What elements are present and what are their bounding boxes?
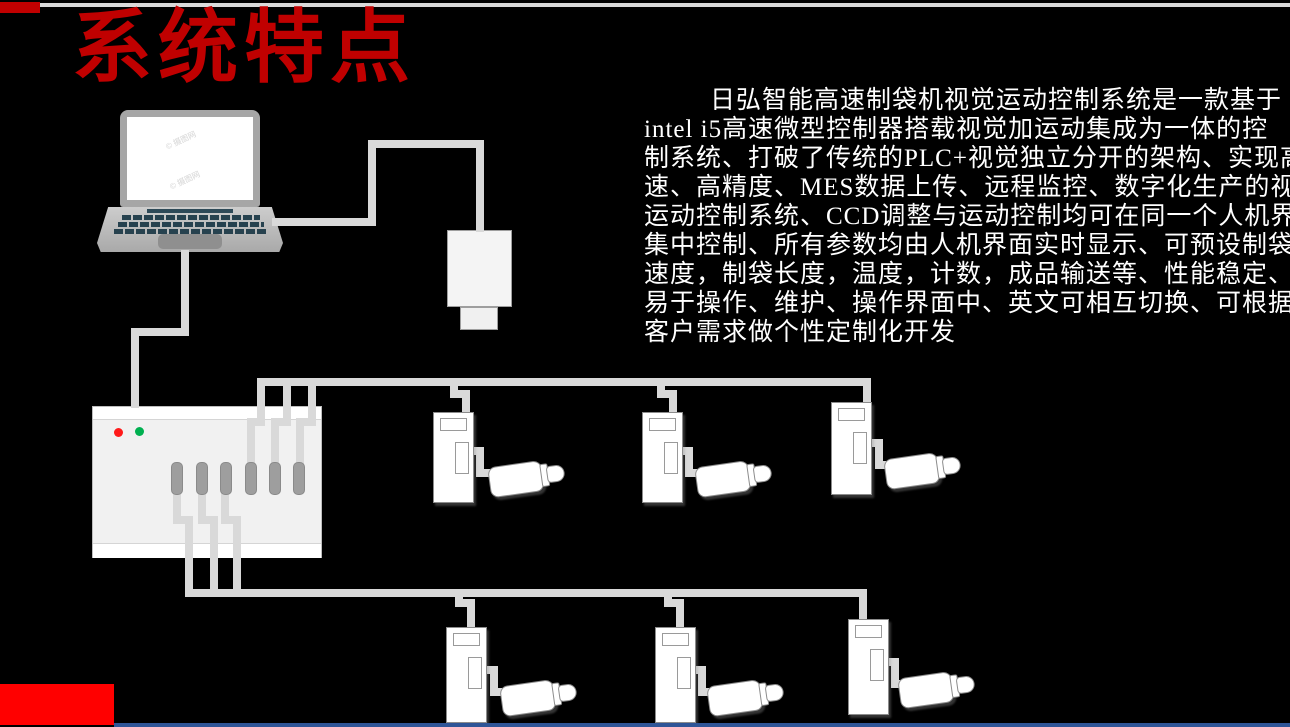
servo-motor	[897, 665, 980, 713]
industrial-camera	[447, 230, 512, 307]
drive-display	[662, 633, 689, 646]
laptop-key-row	[122, 215, 260, 220]
drive-display	[440, 418, 467, 431]
body-line: 制系统、打破了传统的PLC+视觉独立分开的架构、实现高	[644, 144, 1290, 173]
motor-body	[897, 671, 955, 709]
motor-body	[694, 460, 752, 498]
drive-display	[453, 633, 480, 646]
servo-motor	[694, 454, 777, 502]
footer-blue-bar	[114, 723, 1290, 727]
motor-shaft	[765, 683, 785, 702]
body-line: 集中控制、所有参数均由人机界面实时显示、可预设制袋	[644, 231, 1290, 260]
body-line: 日弘智能高速制袋机视觉运动控制系统是一款基于	[644, 86, 1290, 115]
body-line: 客户需求做个性定制化开发	[644, 318, 1290, 347]
cable-segment	[467, 599, 475, 627]
status-led-green	[135, 427, 144, 436]
body-line: 易于操作、维护、操作界面中、英文可相互切换、可根据	[644, 289, 1290, 318]
motor-body	[499, 679, 557, 717]
drive-slot	[468, 657, 482, 689]
drive-display	[855, 625, 882, 638]
cable-segment	[296, 418, 316, 426]
drive-slot	[455, 442, 469, 474]
motor-shaft	[753, 464, 773, 483]
motor-shaft	[956, 675, 976, 694]
cable-segment	[368, 140, 484, 148]
io-terminal	[245, 462, 257, 495]
servo-drive	[655, 627, 696, 723]
motor-shaft	[546, 464, 566, 483]
io-terminal	[171, 462, 183, 495]
footer-red-block	[0, 684, 114, 725]
cable-segment	[271, 418, 291, 426]
servo-drive	[446, 627, 487, 723]
drive-slot	[677, 657, 691, 689]
cable-segment	[210, 516, 218, 597]
cable-segment	[247, 418, 265, 426]
laptop-key-bar	[147, 209, 233, 213]
servo-drive	[831, 402, 872, 495]
io-terminal	[196, 462, 208, 495]
cable-segment	[257, 378, 871, 386]
cable-segment	[233, 516, 241, 597]
io-terminal	[293, 462, 305, 495]
laptop-keyboard	[97, 207, 283, 252]
power-led-red	[114, 428, 123, 437]
body-line: 速度，制袋长度，温度，计数，成品输送等、性能稳定、	[644, 260, 1290, 289]
cable-segment	[181, 250, 189, 336]
io-terminal	[220, 462, 232, 495]
slide-canvas: 系统特点 日弘智能高速制袋机视觉运动控制系统是一款基于 intel i5高速微型…	[0, 0, 1290, 727]
servo-motor	[487, 454, 570, 502]
cable-segment	[131, 328, 139, 408]
cable-segment	[296, 426, 304, 466]
drive-display	[649, 418, 676, 431]
laptop-screen-panel: © 摄图网 © 摄图网	[127, 117, 253, 200]
watermark: © 摄图网	[164, 129, 198, 153]
laptop-screen: © 摄图网 © 摄图网	[120, 110, 260, 207]
body-line: 速、高精度、MES数据上传、远程监控、数字化生产的视觉	[644, 173, 1290, 202]
drive-slot	[870, 649, 884, 681]
servo-drive	[848, 619, 889, 715]
cable-segment	[271, 426, 279, 466]
cable-segment	[131, 328, 189, 336]
drive-display	[838, 408, 865, 421]
servo-motor	[883, 446, 966, 494]
drive-slot	[853, 432, 867, 464]
cable-segment	[247, 426, 255, 466]
page-title: 系统特点	[72, 0, 416, 96]
cable-segment	[676, 599, 684, 627]
cable-segment	[476, 140, 484, 232]
servo-motor	[706, 673, 789, 721]
camera-lens	[460, 307, 498, 330]
io-terminal	[269, 462, 281, 495]
servo-drive	[433, 412, 474, 503]
cable-segment	[272, 218, 376, 226]
motor-body	[487, 460, 545, 498]
cable-segment	[863, 382, 871, 402]
body-paragraph: 日弘智能高速制袋机视觉运动控制系统是一款基于 intel i5高速微型控制器搭载…	[644, 86, 1290, 347]
cable-segment	[368, 140, 376, 226]
cable-segment	[185, 516, 193, 597]
watermark: © 摄图网	[168, 169, 202, 193]
cable-segment	[462, 390, 470, 412]
motor-shaft	[942, 456, 962, 475]
body-line: intel i5高速微型控制器搭载视觉加运动集成为一体的控	[644, 115, 1290, 144]
cable-segment	[859, 593, 867, 619]
drive-slot	[664, 442, 678, 474]
motor-body	[883, 452, 941, 490]
laptop-key-row	[118, 222, 264, 227]
controller-bottom-strip	[93, 543, 321, 558]
motor-shaft	[558, 683, 578, 702]
cable-segment	[669, 390, 677, 412]
laptop-trackpad	[158, 234, 222, 249]
body-line: 运动控制系统、CCD调整与运动控制均可在同一个人机界面	[644, 202, 1290, 231]
motor-body	[706, 679, 764, 717]
corner-red-bar	[0, 2, 40, 13]
servo-drive	[642, 412, 683, 503]
servo-motor	[499, 673, 582, 721]
cable-segment	[185, 589, 867, 597]
